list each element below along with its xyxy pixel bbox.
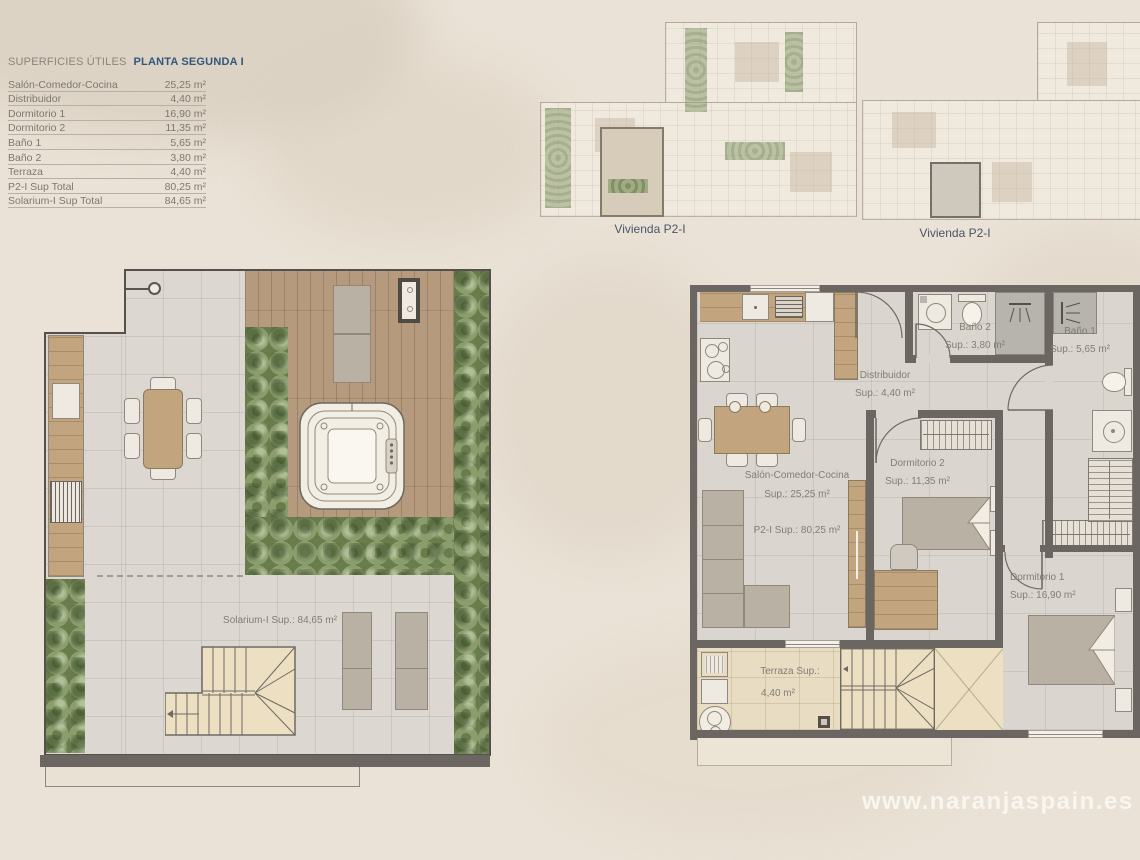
table-row: P2-I Sup Total80,25 m²	[8, 179, 206, 194]
dormitorio2-sup: Sup.: 11,35 m²	[870, 476, 965, 487]
distribuidor-sup: Sup.: 4,40 m²	[820, 388, 950, 399]
areas-table-rows: Salón-Comedor-Cocina25,25 m² Distribuido…	[8, 77, 206, 208]
row-label: Salón-Comedor-Cocina	[8, 79, 118, 91]
row-value: 3,80 m²	[170, 152, 206, 164]
overview-room	[1067, 42, 1107, 86]
table-row: Dormitorio 211,35 m²	[8, 121, 206, 136]
dormitorio1-sup: Sup.: 16,90 m²	[1010, 590, 1076, 601]
floorplan-sheet: SUPERFICIES ÚTILESPLANTA SEGUNDA I Salón…	[0, 0, 1140, 860]
row-value: 5,65 m²	[170, 137, 206, 149]
row-value: 11,35 m²	[165, 122, 206, 134]
overview-room	[892, 112, 936, 148]
solarium-plan: Solarium-I Sup.: 84,65 m²	[40, 265, 495, 793]
areas-table: SUPERFICIES ÚTILESPLANTA SEGUNDA I Salón…	[8, 56, 206, 208]
distribuidor-name: Distribuidor	[820, 370, 950, 381]
overview-plan-left	[535, 22, 857, 218]
apartment-plan: Baño 2 Sup.: 3,80 m² Baño 1 Sup.: 5,65 m…	[690, 280, 1140, 780]
row-label: Baño 1	[8, 137, 41, 149]
terraza-name: Terraza Sup.:	[740, 666, 840, 677]
row-value: 16,90 m²	[165, 108, 206, 120]
lower-ledge	[45, 767, 360, 787]
row-label: P2-I Sup Total	[8, 181, 74, 193]
salon-sup: Sup.: 25,25 m²	[722, 489, 872, 500]
table-row: Baño 23,80 m²	[8, 150, 206, 165]
areas-table-title: SUPERFICIES ÚTILESPLANTA SEGUNDA I	[8, 56, 206, 68]
salon-name: Salón-Comedor-Cocina	[722, 470, 872, 481]
overview-garden	[545, 108, 571, 208]
background-wash	[260, 60, 560, 240]
table-row: Salón-Comedor-Cocina25,25 m²	[8, 77, 206, 92]
areas-table-title-left: SUPERFICIES ÚTILES	[8, 56, 127, 68]
banio1-name: Baño 1	[1040, 326, 1120, 337]
overview-garden	[608, 179, 648, 193]
dormitorio1-name: Dormitorio 1	[1010, 572, 1064, 583]
overview-garden	[685, 28, 707, 112]
row-value: 4,40 m²	[170, 93, 206, 105]
overview-caption-right: Vivienda P2-I	[880, 226, 1030, 240]
overview-room	[992, 162, 1032, 202]
row-label: Dormitorio 2	[8, 122, 65, 134]
row-value: 80,25 m²	[165, 181, 206, 193]
banio1-sup: Sup.: 5,65 m²	[1040, 344, 1120, 355]
row-value: 4,40 m²	[170, 166, 206, 178]
overview-highlighted-unit	[600, 127, 664, 217]
row-label: Dormitorio 1	[8, 108, 65, 120]
solarium-outline	[40, 265, 495, 793]
overview-room	[790, 152, 832, 192]
overview-highlighted-unit	[930, 162, 981, 218]
table-row: Dormitorio 116,90 m²	[8, 106, 206, 121]
salon-total-sup: P2-I Sup.: 80,25 m²	[722, 525, 872, 536]
row-label: Terraza	[8, 166, 43, 178]
banio2-name: Baño 2	[930, 322, 1020, 333]
row-label: Distribuidor	[8, 93, 61, 105]
overview-garden	[785, 32, 803, 92]
table-row: Distribuidor4,40 m²	[8, 92, 206, 107]
lower-apron	[697, 738, 952, 766]
row-label: Baño 2	[8, 152, 41, 164]
overview-room	[735, 42, 779, 82]
overview-garden	[725, 142, 785, 160]
parapet-wall	[40, 755, 490, 767]
row-label: Solarium-I Sup Total	[8, 195, 102, 207]
table-row: Terraza4,40 m²	[8, 165, 206, 180]
row-value: 25,25 m²	[165, 79, 206, 91]
table-row: Baño 15,65 m²	[8, 135, 206, 150]
terraza-sup: 4,40 m²	[728, 688, 828, 699]
watermark: www.naranjaspain.es	[862, 788, 1134, 816]
table-row: Solarium-I Sup Total84,65 m²	[8, 194, 206, 209]
row-value: 84,65 m²	[165, 195, 206, 207]
overview-plan-right	[862, 22, 1140, 236]
planta-segunda-label: PLANTA SEGUNDA I	[134, 56, 244, 68]
overview-caption-left: Vivienda P2-I	[575, 222, 725, 236]
banio2-sup: Sup.: 3,80 m²	[930, 340, 1020, 351]
dormitorio2-name: Dormitorio 2	[870, 458, 965, 469]
